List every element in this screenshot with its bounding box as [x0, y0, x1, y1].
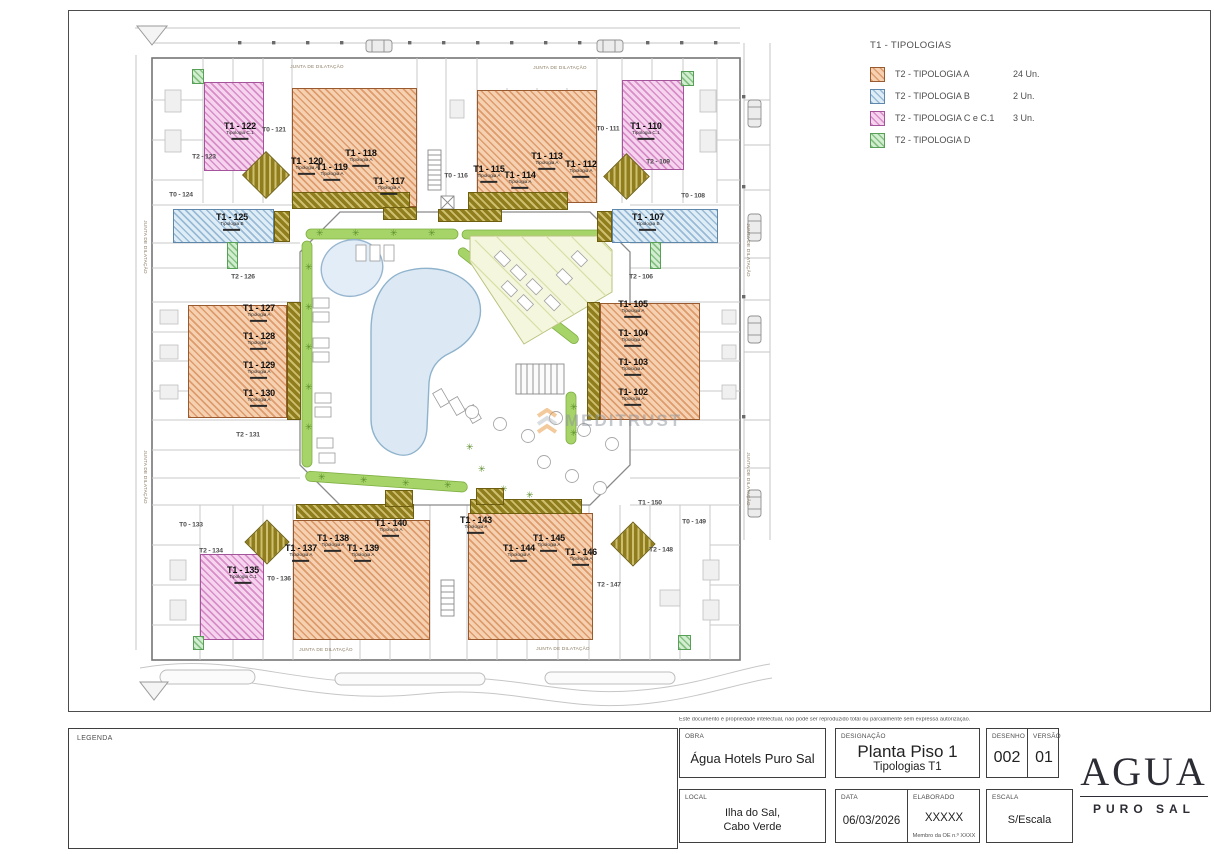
- room-label-T1-112: T1 - 112Tipologia A: [565, 160, 596, 178]
- balcony-strip: [597, 211, 612, 242]
- svg-text:✳: ✳: [466, 442, 474, 452]
- svg-text:✳: ✳: [352, 228, 360, 238]
- balcony-strip: [287, 302, 301, 420]
- room-label-T1-107: T1 - 107Tipologia B: [632, 213, 664, 231]
- legend-row-b: T2 - TIPOLOGIA B 2 Un.: [870, 85, 1200, 107]
- room-label-T1-119: T1 - 119Tipologia A: [316, 163, 347, 181]
- drawing-sheet: ✳✳✳✳ ✳✳✳✳ ✳✳✳✳ ✳✳✳✳ ✳✳✳✳ ✳✳ ✳: [0, 0, 1214, 854]
- room-label-T0-121: T0 - 121: [262, 128, 286, 135]
- room-label-T2-126: T2 - 126: [231, 275, 255, 282]
- unit-block-d-2: [681, 71, 694, 86]
- room-label-T2-109: T2 - 109: [646, 160, 670, 167]
- typology-legend: T1 - TIPOLOGIAS T2 - TIPOLOGIA A 24 Un. …: [870, 40, 1200, 151]
- junta-dilatacao-annotation: JUNTA DE DILATAÇÃO: [143, 450, 148, 504]
- room-label-T1-143: T1 - 143Tipologia A: [460, 516, 492, 534]
- room-label-T1-138: T1 - 138Tipologia A: [317, 534, 349, 552]
- room-label-T2-148: T2 - 148: [649, 548, 673, 555]
- room-label-T1-127: T1 - 127Tipologia A: [243, 304, 275, 322]
- room-label-T0-124: T0 - 124: [169, 193, 193, 200]
- room-label-T1-130: T1 - 130Tipologia A: [243, 389, 275, 407]
- balcony-strip: [274, 211, 290, 242]
- room-label-T1-144: T1 - 144Tipologia A: [503, 544, 535, 562]
- unit-block-a-bottomleft: [293, 520, 430, 640]
- unit-block-d-6: [650, 242, 661, 269]
- room-label-T0-116: T0 - 116: [444, 174, 467, 181]
- room-label-T1-105: T1- 105Tipologia A: [618, 300, 648, 318]
- svg-text:✳: ✳: [316, 228, 324, 238]
- room-label-T2-131: T2 - 131: [236, 433, 260, 440]
- room-label-T1-150: T1 - 150: [638, 501, 662, 508]
- junta-dilatacao-annotation: JUNTA DE DILATAÇÃO: [746, 223, 751, 277]
- junta-dilatacao-annotation: JUNTA DE DILATAÇÃO: [290, 65, 344, 70]
- legend-label-a: T2 - TIPOLOGIA A: [895, 69, 1013, 79]
- room-label-T1-145: T1 - 145Tipologia A: [533, 534, 565, 552]
- room-label-T0-111: T0 - 111: [597, 127, 620, 134]
- room-label-T1-140: T1 - 140Tipologia A: [375, 519, 407, 537]
- svg-text:✳: ✳: [318, 472, 326, 482]
- room-label-T2-147: T2 - 147: [597, 583, 621, 590]
- junta-dilatacao-annotation: JUNTA DE DILATAÇÃO: [746, 452, 751, 506]
- room-label-T0-136: T0 - 136: [267, 577, 291, 584]
- svg-text:✳: ✳: [360, 475, 368, 485]
- room-label-T1-137: T1 - 137Tipologia A: [285, 544, 317, 562]
- balcony-strip: [587, 302, 600, 420]
- logo-rule: [1080, 796, 1208, 797]
- unit-block-a-topright: [477, 90, 597, 203]
- unit-block-a-right: [600, 303, 700, 420]
- logo-name: AGUA: [1078, 752, 1210, 792]
- legend-swatch-b: [870, 89, 885, 104]
- legend-label-b: T2 - TIPOLOGIA B: [895, 91, 1013, 101]
- room-label-T1-128: T1 - 128Tipologia A: [243, 332, 275, 350]
- room-label-T1-118: T1 - 118Tipologia A: [345, 149, 376, 167]
- unit-block-d-4: [678, 635, 691, 650]
- svg-text:✳: ✳: [428, 228, 436, 238]
- svg-text:✳: ✳: [570, 428, 578, 438]
- junta-dilatacao-annotation: JUNTA DE DILATAÇÃO: [536, 647, 590, 652]
- legend-label-c: T2 - TIPOLOGIA C e C.1: [895, 113, 1013, 123]
- room-label-T1-114: T1 - 114Tipologia A: [504, 171, 535, 189]
- legend-swatch-d: [870, 133, 885, 148]
- svg-text:✳: ✳: [305, 382, 313, 392]
- room-label-T1-102: T1- 102Tipologia A: [618, 388, 648, 406]
- unit-block-b-107: [612, 209, 718, 243]
- room-label-T1-115: T1 - 115Tipologia A: [473, 165, 504, 183]
- legend-title: T1 - TIPOLOGIAS: [870, 40, 1200, 51]
- unit-block-d-3: [193, 636, 204, 650]
- pergola-strip: [385, 490, 413, 507]
- svg-text:✳: ✳: [570, 402, 578, 412]
- svg-text:✳: ✳: [478, 464, 486, 474]
- svg-text:✳: ✳: [390, 228, 398, 238]
- legend-row-a: T2 - TIPOLOGIA A 24 Un.: [870, 63, 1200, 85]
- room-label-T2-106: T2 - 106: [629, 275, 653, 282]
- unit-block-d-5: [227, 242, 238, 269]
- legend-row-c: T2 - TIPOLOGIA C e C.1 3 Un.: [870, 107, 1200, 129]
- room-label-T2-134: T2 - 134: [199, 549, 223, 556]
- svg-text:✳: ✳: [305, 342, 313, 352]
- room-label-T1-125: T1 - 125Tipologia B: [216, 213, 248, 231]
- junta-dilatacao-annotation: JUNTA DE DILATAÇÃO: [299, 648, 353, 653]
- room-label-T1-117: T1 - 117Tipologia A: [373, 177, 404, 195]
- room-label-T1-104: T1- 104Tipologia A: [618, 329, 648, 347]
- unit-block-d-1: [192, 69, 204, 84]
- room-label-T1-146: T1 - 146Tipologia A: [565, 548, 597, 566]
- brand-logo: AGUA PURO SAL: [1078, 752, 1210, 816]
- pergola-strip: [438, 209, 502, 222]
- svg-text:✳: ✳: [444, 480, 452, 490]
- svg-text:✳: ✳: [305, 302, 313, 312]
- legend-row-d: T2 - TIPOLOGIA D: [870, 129, 1200, 151]
- legend-count-a: 24 Un.: [1013, 69, 1040, 79]
- svg-text:✳: ✳: [305, 262, 313, 272]
- legend-label-d: T2 - TIPOLOGIA D: [895, 135, 1013, 145]
- room-label-T1-129: T1 - 129Tipologia A: [243, 361, 275, 379]
- room-label-T1-135: T1 - 135Tipologia C.1: [225, 566, 260, 584]
- legend-swatch-a: [870, 67, 885, 82]
- svg-text:✳: ✳: [402, 478, 410, 488]
- room-label-T1-113: T1 - 113Tipologia A: [531, 152, 562, 170]
- room-label-T1-103: T1- 103Tipologia A: [618, 358, 648, 376]
- legend-swatch-c: [870, 111, 885, 126]
- pergola-strip: [476, 488, 504, 505]
- legend-count-b: 2 Un.: [1013, 91, 1035, 101]
- svg-text:✳: ✳: [305, 422, 313, 432]
- room-label-T0-149: T0 - 149: [682, 520, 706, 527]
- room-label-T2-123: T2 - 123: [192, 155, 216, 162]
- junta-dilatacao-annotation: JUNTA DE DILATAÇÃO: [143, 220, 148, 274]
- pergola-strip: [383, 207, 417, 220]
- legend-count-c: 3 Un.: [1013, 113, 1035, 123]
- logo-tagline: PURO SAL: [1078, 802, 1210, 816]
- balcony-strip: [468, 192, 568, 210]
- junta-dilatacao-annotation: JUNTA DE DILATAÇÃO: [533, 66, 587, 71]
- room-label-T0-133: T0 - 133: [179, 523, 203, 530]
- room-label-T1-122: T1 - 122Tipologia C.1: [222, 122, 257, 140]
- room-label-T0-108: T0 - 108: [681, 194, 705, 201]
- room-label-T1-139: T1 - 139Tipologia A: [347, 544, 379, 562]
- room-label-T1-110: T1 - 110Tipologia C.1: [628, 122, 663, 140]
